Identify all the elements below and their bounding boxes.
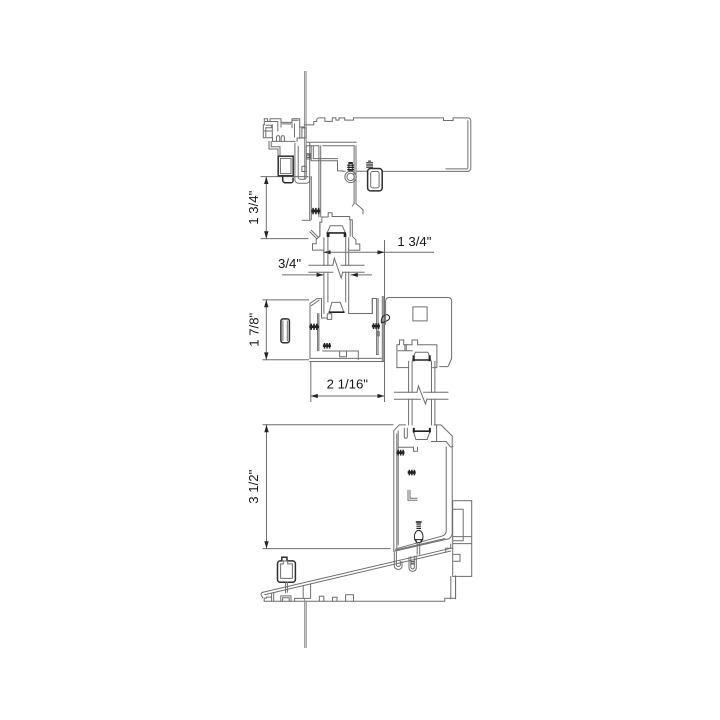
- svg-text:2 1/16": 2 1/16": [327, 377, 369, 392]
- svg-text:3 1/2": 3 1/2": [246, 469, 261, 503]
- svg-text:1 7/8": 1 7/8": [247, 312, 262, 346]
- svg-text:3/4": 3/4": [278, 256, 301, 271]
- svg-text:1 3/4": 1 3/4": [246, 190, 261, 224]
- svg-text:1 3/4": 1 3/4": [397, 234, 431, 249]
